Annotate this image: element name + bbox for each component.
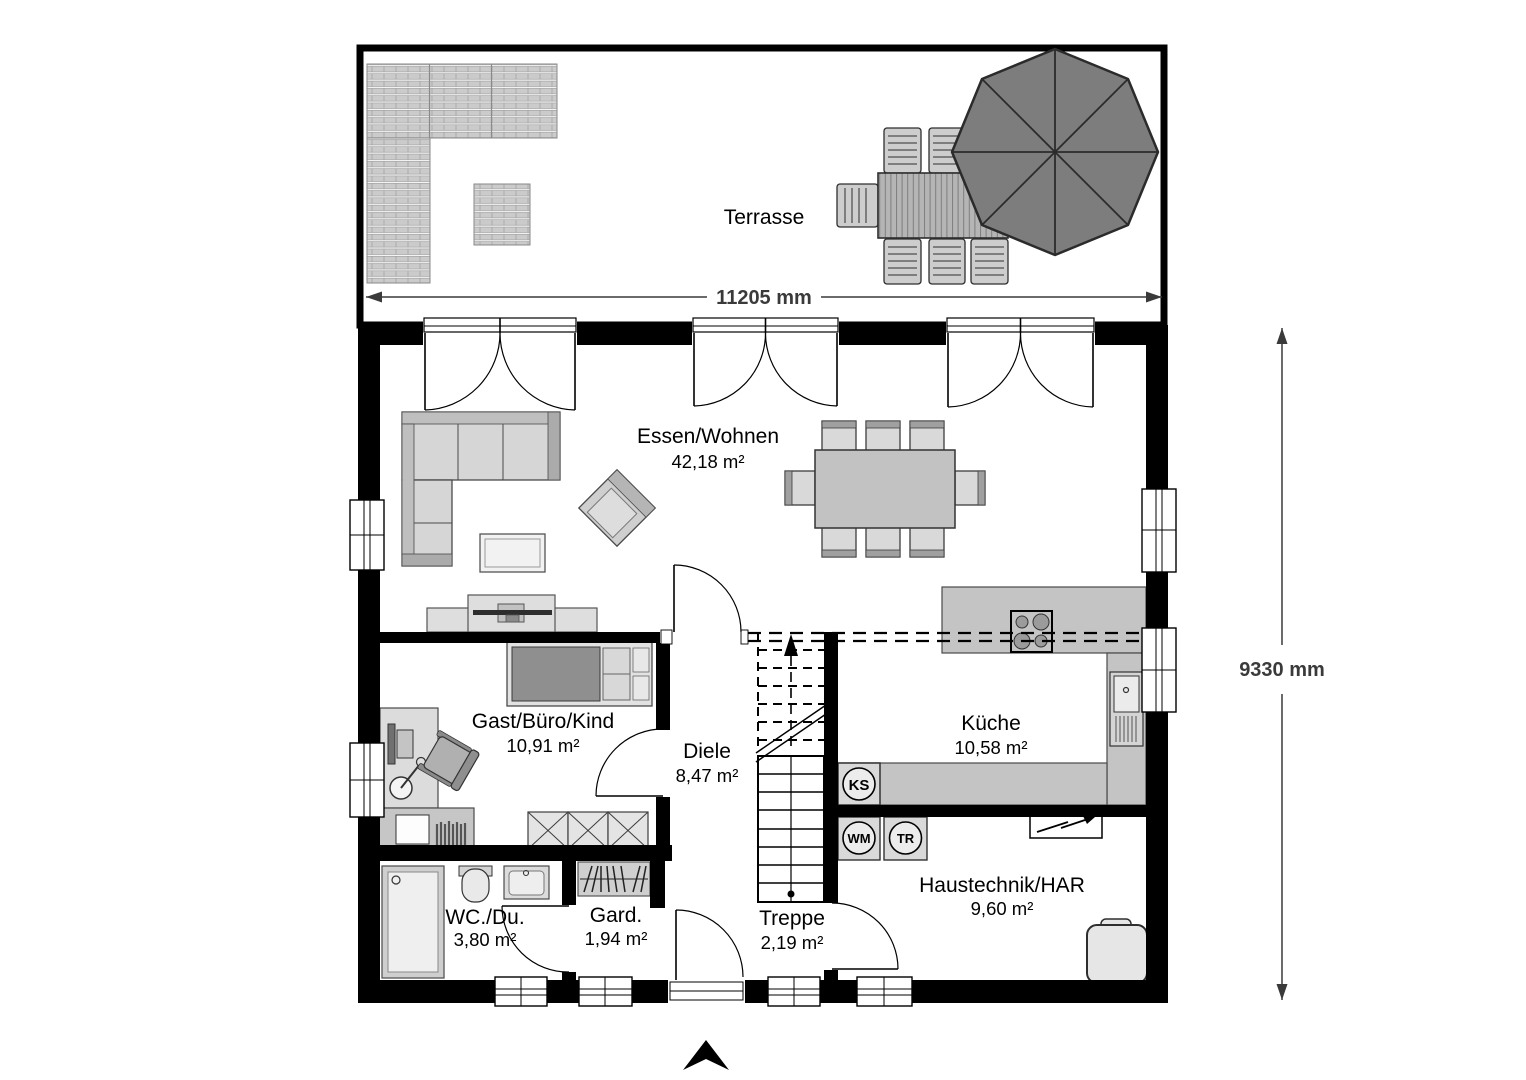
kitchen-counter: KS bbox=[838, 587, 1146, 805]
fridge-label: KS bbox=[849, 777, 870, 794]
dining-table bbox=[815, 450, 955, 528]
washbasin-icon bbox=[504, 866, 549, 899]
living-furniture bbox=[402, 412, 655, 632]
room-label-haustechnik: Haustechnik/HAR bbox=[919, 874, 1085, 897]
coffee-table bbox=[480, 534, 545, 572]
room-label-kueche: Küche bbox=[961, 712, 1021, 735]
dim-arrow-up-icon bbox=[1277, 328, 1288, 344]
outdoor-chair bbox=[884, 239, 921, 284]
room-label-treppe: Treppe bbox=[759, 907, 825, 930]
door-utility bbox=[832, 903, 898, 969]
fridge-ks: KS bbox=[838, 763, 880, 805]
door-living-hall bbox=[661, 565, 748, 644]
monitor-icon bbox=[388, 724, 395, 764]
window bbox=[768, 977, 820, 1006]
room-label-gard: Gard. bbox=[590, 904, 643, 927]
patio-double-door bbox=[692, 316, 839, 406]
cooktop-icon bbox=[1011, 611, 1052, 652]
dim-arrow-down-icon bbox=[1277, 984, 1288, 1000]
tv-icon bbox=[473, 610, 552, 615]
terrace: Terrasse bbox=[360, 48, 1164, 325]
room-area-kueche: 10,58 m² bbox=[954, 737, 1027, 758]
front-door bbox=[670, 910, 743, 1000]
sink-icon bbox=[1110, 672, 1143, 746]
patio-double-door bbox=[946, 316, 1095, 407]
armchair bbox=[579, 470, 655, 546]
room-area-haustechnik: 9,60 m² bbox=[971, 898, 1034, 919]
window bbox=[857, 977, 912, 1006]
wm-label: WM bbox=[847, 831, 870, 846]
washing-machine-wm: WM bbox=[838, 817, 880, 860]
dining-set bbox=[785, 421, 985, 557]
floor-plan-svg: Terrasse 11205 mm 9330 mm bbox=[0, 0, 1526, 1080]
window bbox=[350, 500, 384, 570]
window bbox=[350, 743, 384, 817]
outdoor-chair bbox=[837, 184, 878, 227]
patio-double-door bbox=[423, 316, 577, 410]
floor-plan-page: Terrasse 11205 mm 9330 mm bbox=[0, 0, 1526, 1080]
entrance-arrow-icon bbox=[683, 1040, 729, 1070]
room-area-essen-wohnen: 42,18 m² bbox=[671, 451, 744, 472]
window bbox=[579, 977, 632, 1006]
room-label-diele: Diele bbox=[683, 740, 731, 763]
dimension-width-label: 11205 mm bbox=[716, 287, 812, 309]
window bbox=[1142, 489, 1176, 572]
toilet-icon bbox=[459, 866, 492, 902]
stairs bbox=[756, 632, 826, 902]
dryer-tr: TR bbox=[884, 817, 927, 860]
room-area-treppe: 2,19 m² bbox=[761, 932, 824, 953]
outdoor-chair bbox=[884, 128, 921, 173]
umbrella-icon bbox=[952, 49, 1158, 255]
room-area-gast: 10,91 m² bbox=[506, 735, 579, 756]
window bbox=[1142, 628, 1176, 712]
tv-sideboard bbox=[427, 595, 597, 632]
window bbox=[495, 977, 547, 1006]
sideboard bbox=[378, 808, 474, 850]
room-area-wc: 3,80 m² bbox=[454, 929, 517, 950]
shower-icon bbox=[382, 866, 444, 978]
room-label-gast: Gast/Büro/Kind bbox=[472, 710, 614, 733]
boiler-icon bbox=[1087, 919, 1147, 983]
room-label-essen-wohnen: Essen/Wohnen bbox=[637, 425, 779, 448]
room-area-diele: 8,47 m² bbox=[676, 765, 739, 786]
bed bbox=[507, 642, 652, 706]
wardrobe bbox=[528, 812, 648, 849]
coat-rack bbox=[578, 862, 650, 896]
door-guest-room bbox=[596, 729, 663, 796]
outdoor-chair bbox=[971, 239, 1008, 284]
dimension-height-label: 9330 mm bbox=[1239, 659, 1325, 681]
terrace-label: Terrasse bbox=[724, 206, 805, 229]
tr-label: TR bbox=[897, 831, 915, 846]
outdoor-chair bbox=[929, 239, 965, 284]
room-label-wc: WC./Du. bbox=[445, 906, 524, 929]
room-area-gard: 1,94 m² bbox=[585, 928, 648, 949]
